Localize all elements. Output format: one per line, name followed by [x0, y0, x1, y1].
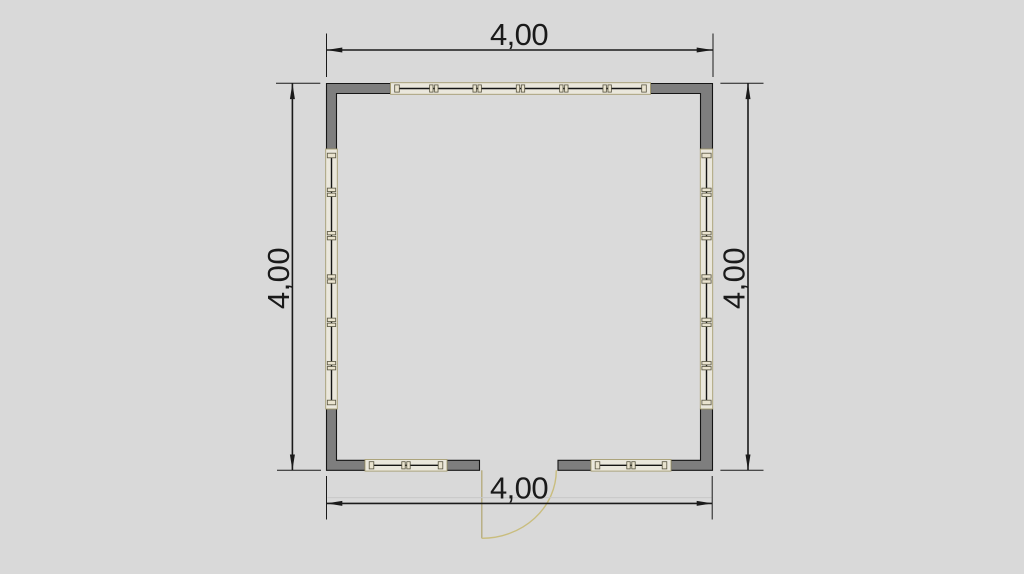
- svg-text:4,00: 4,00: [490, 17, 548, 52]
- svg-text:4,00: 4,00: [261, 247, 296, 309]
- svg-text:4,00: 4,00: [490, 471, 548, 506]
- svg-text:4,00: 4,00: [717, 247, 752, 309]
